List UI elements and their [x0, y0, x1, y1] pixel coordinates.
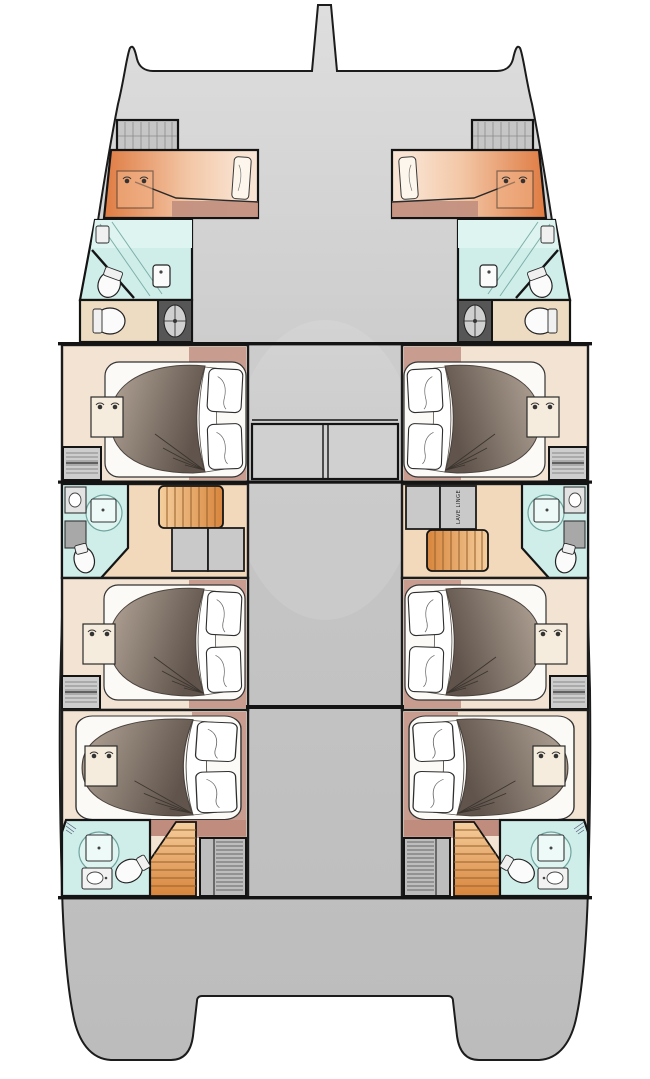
locker [172, 528, 208, 571]
aft-bathroom [62, 820, 153, 896]
wardrobe [200, 838, 246, 896]
locker [208, 528, 244, 571]
plan-canvas: LAVE LINGE [0, 0, 650, 1079]
cabin-mid [62, 578, 248, 710]
carpet [148, 820, 246, 836]
cabin-aft [62, 710, 248, 898]
deck-hatch [117, 120, 178, 152]
vent-fan-icon [158, 300, 192, 342]
toilet-icon [93, 308, 125, 334]
berth-pillow [232, 156, 252, 199]
cabinet [96, 226, 109, 243]
stairs [427, 530, 488, 571]
central-locker [252, 420, 398, 479]
forward-cabin [104, 150, 258, 218]
forward-desk [117, 171, 153, 208]
locker [406, 486, 440, 529]
sink-icon [153, 265, 170, 287]
cabin-forward [62, 345, 248, 482]
forward-bathroom [80, 220, 192, 301]
catamaran-deck-plan: LAVE LINGE [0, 0, 650, 1079]
utility-room [80, 300, 192, 342]
berth-edge-strip [172, 201, 258, 217]
lave-linge-label: LAVE LINGE [456, 490, 462, 524]
